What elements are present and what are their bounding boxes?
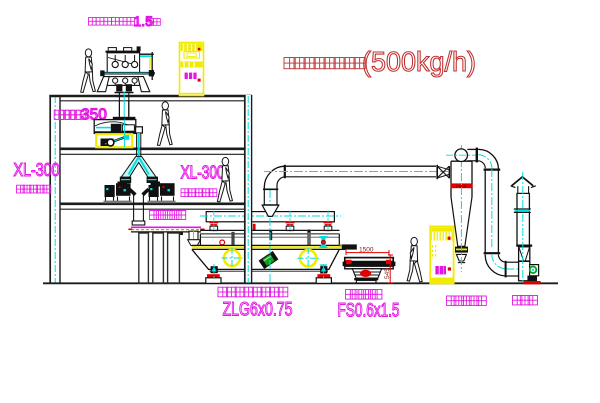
svg-text:XL-300: XL-300 — [181, 163, 225, 183]
svg-text:XL-300: XL-300 — [14, 160, 60, 180]
svg-text:FS0.6x1.5: FS0.6x1.5 — [338, 301, 400, 322]
svg-text:(500kg/h): (500kg/h) — [362, 46, 476, 77]
svg-text:1500: 1500 — [359, 247, 374, 254]
svg-text:ZLG6x0.75: ZLG6x0.75 — [223, 300, 293, 321]
svg-text:545: 545 — [384, 268, 391, 279]
